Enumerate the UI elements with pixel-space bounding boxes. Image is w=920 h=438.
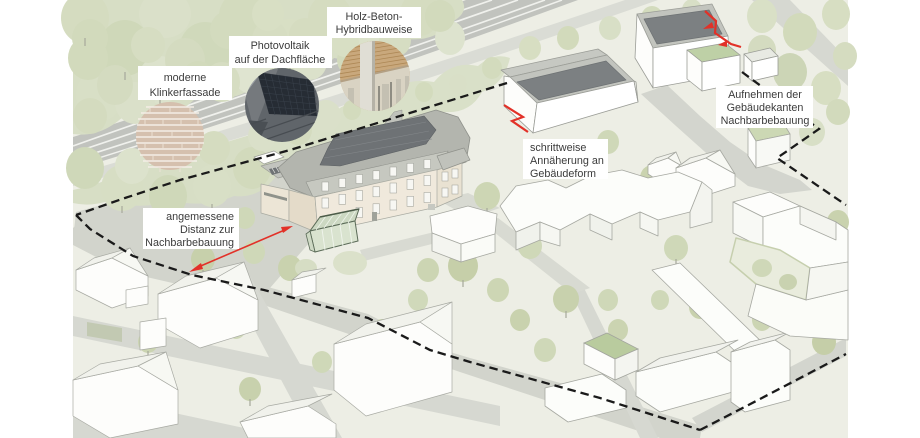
svg-text:angemessene: angemessene bbox=[166, 211, 234, 223]
svg-text:Gebäudeform: Gebäudeform bbox=[530, 168, 596, 180]
svg-text:auf der Dachfläche: auf der Dachfläche bbox=[235, 54, 326, 66]
svg-text:Annäherung an: Annäherung an bbox=[530, 155, 604, 167]
svg-text:Photovoltaik: Photovoltaik bbox=[251, 40, 310, 52]
svg-text:Distanz zur: Distanz zur bbox=[180, 224, 234, 236]
svg-text:moderne: moderne bbox=[164, 72, 207, 84]
svg-text:Nachbarbebauung: Nachbarbebauung bbox=[145, 237, 234, 249]
svg-text:schrittweise: schrittweise bbox=[530, 142, 586, 154]
svg-text:Gebäudekanten: Gebäudekanten bbox=[727, 102, 804, 114]
svg-text:Klinkerfassade: Klinkerfassade bbox=[150, 87, 221, 99]
svg-text:Nachbarbebauung: Nachbarbebauung bbox=[721, 115, 810, 127]
svg-text:Aufnehmen der: Aufnehmen der bbox=[728, 89, 802, 101]
svg-text:Hybridbauweise: Hybridbauweise bbox=[336, 24, 413, 36]
svg-text:Holz-Beton-: Holz-Beton- bbox=[345, 11, 402, 23]
